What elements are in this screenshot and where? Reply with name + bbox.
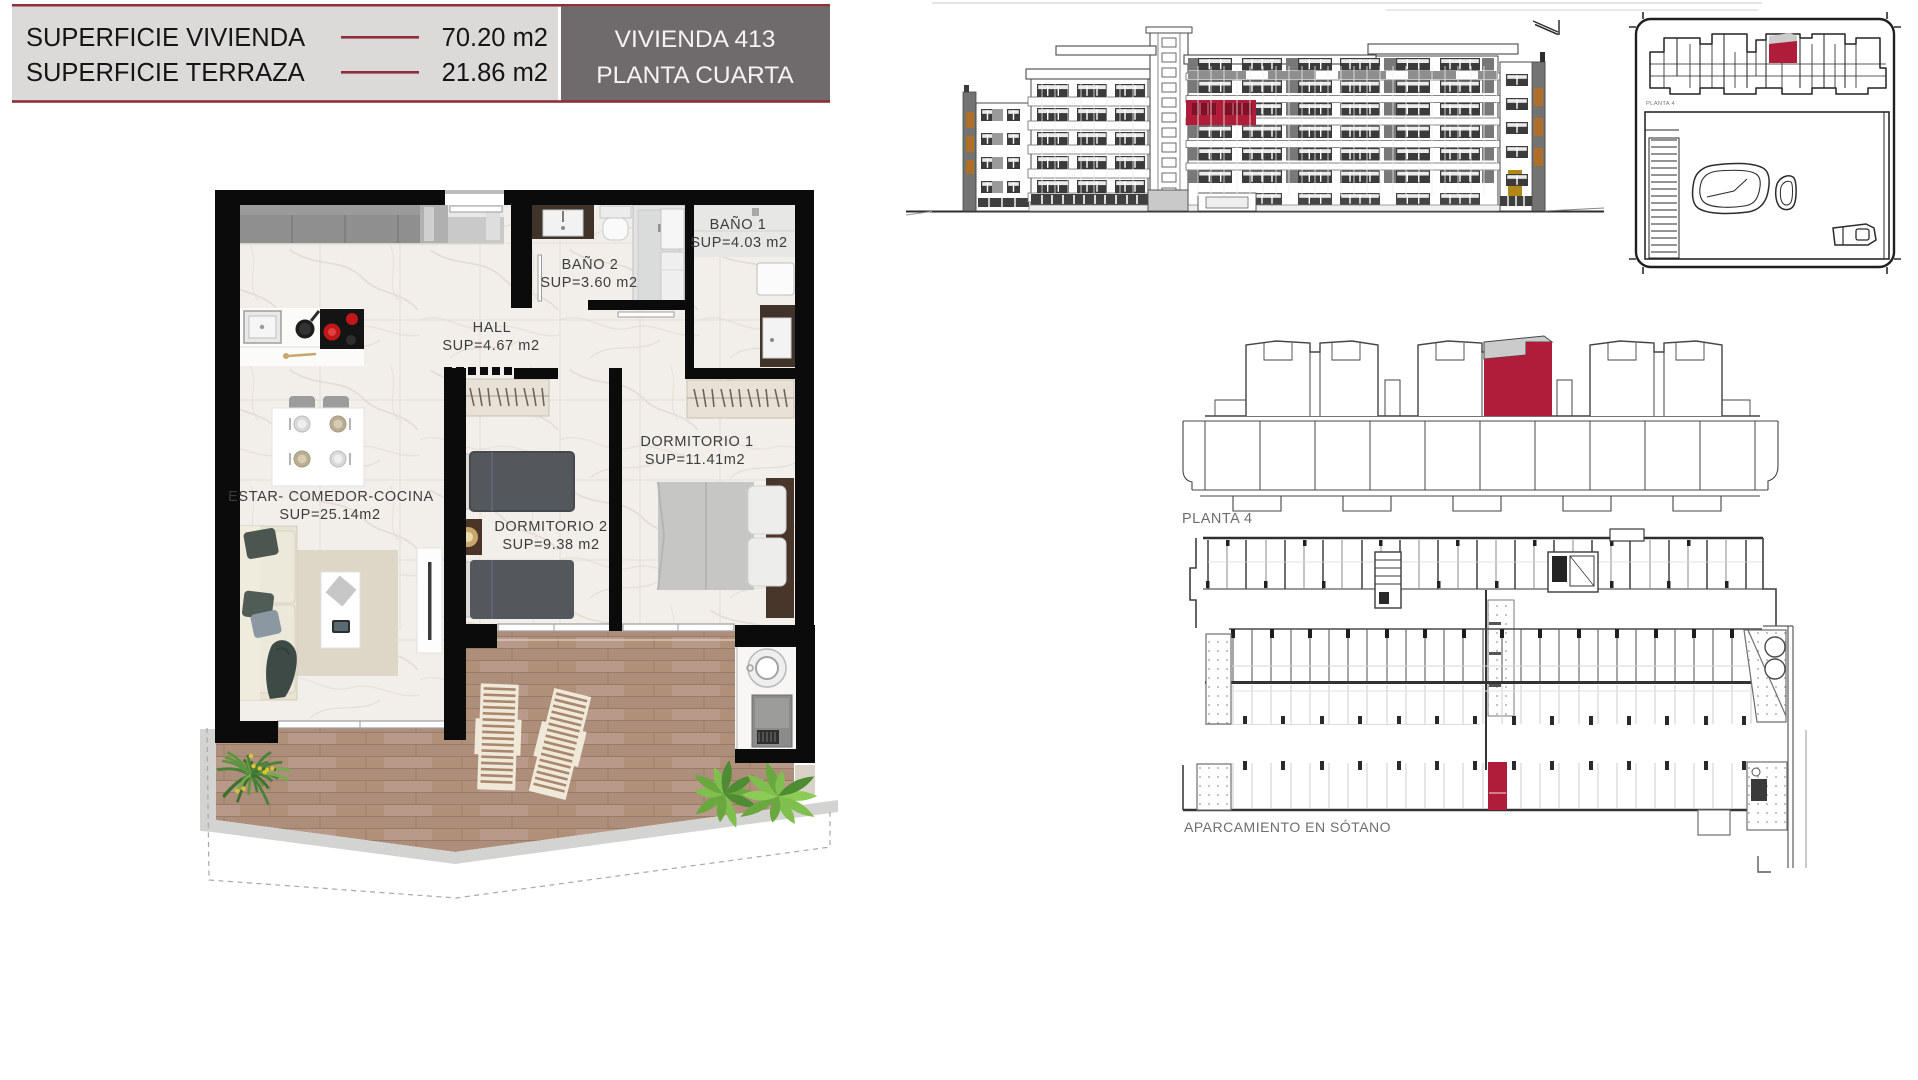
svg-text:VIVIENDA 413: VIVIENDA 413 (615, 26, 776, 53)
svg-text:SUP=25.14m2: SUP=25.14m2 (279, 507, 380, 523)
svg-text:SUPERFICIE TERRAZA: SUPERFICIE TERRAZA (26, 59, 305, 87)
svg-text:BAÑO 1: BAÑO 1 (710, 216, 767, 233)
svg-text:DORMITORIO 1: DORMITORIO 1 (640, 434, 753, 450)
svg-text:21.86 m2: 21.86 m2 (442, 59, 548, 87)
svg-text:APARCAMIENTO EN SÓTANO: APARCAMIENTO EN SÓTANO (1184, 819, 1391, 835)
svg-text:PLANTA CUARTA: PLANTA CUARTA (596, 62, 794, 89)
svg-text:SUPERFICIE VIVIENDA: SUPERFICIE VIVIENDA (26, 24, 305, 52)
svg-text:SUP=4.03 m2: SUP=4.03 m2 (690, 235, 787, 251)
svg-text:SUP=11.41m2: SUP=11.41m2 (645, 452, 745, 468)
svg-text:PLANTA 4: PLANTA 4 (1182, 511, 1253, 527)
svg-text:ESTAR- COMEDOR-COCINA: ESTAR- COMEDOR-COCINA (228, 489, 434, 505)
svg-text:70.20 m2: 70.20 m2 (442, 24, 548, 52)
svg-text:BAÑO 2: BAÑO 2 (562, 256, 619, 273)
svg-text:PLANTA 4: PLANTA 4 (1646, 101, 1676, 107)
svg-text:SUP=3.60 m2: SUP=3.60 m2 (540, 275, 637, 291)
svg-text:DORMITORIO 2: DORMITORIO 2 (494, 519, 607, 535)
svg-text:SUP=9.38 m2: SUP=9.38 m2 (502, 537, 599, 553)
svg-text:SUP=4.67 m2: SUP=4.67 m2 (442, 338, 539, 354)
svg-text:HALL: HALL (473, 320, 512, 336)
